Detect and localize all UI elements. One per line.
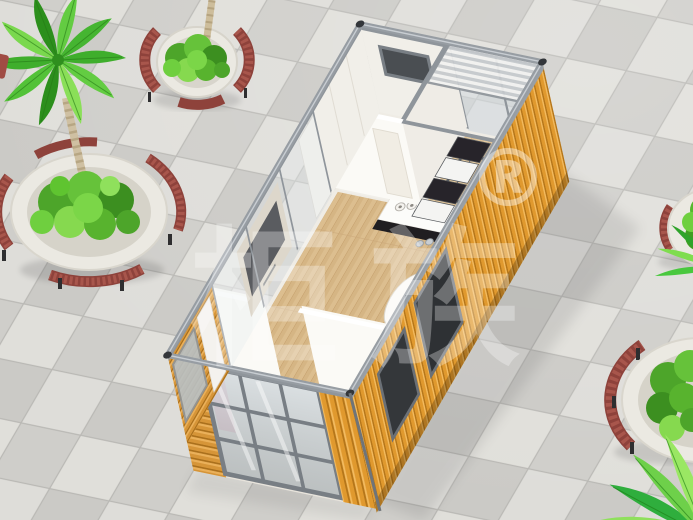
registered-mark: ® bbox=[468, 132, 548, 225]
watermark-text: 柜族 bbox=[190, 214, 550, 388]
palm-crown bbox=[52, 54, 64, 66]
scene-svg: 柜族 ® bbox=[0, 0, 693, 520]
render-canvas: 柜族 ® bbox=[0, 0, 693, 520]
